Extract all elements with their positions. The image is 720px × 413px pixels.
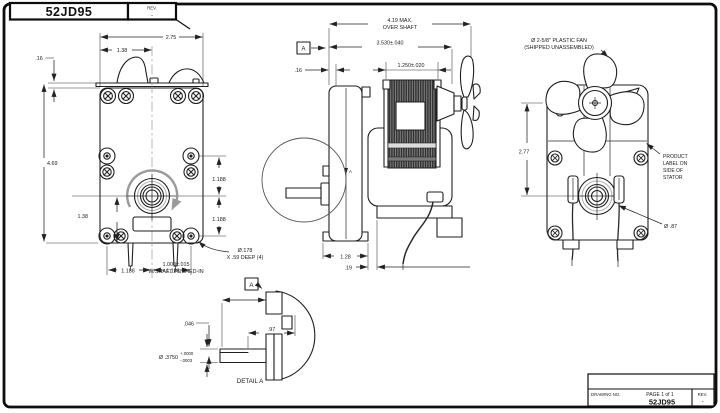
- boss-step: [282, 316, 292, 329]
- foot-width-dim: 1.28: [340, 255, 351, 261]
- bracket-base: [377, 206, 452, 218]
- stator-window: [396, 102, 425, 130]
- boss-section: [266, 292, 282, 314]
- overall-dim: OVER SHAFT: [383, 25, 418, 31]
- datum-flag-label: A: [249, 282, 254, 289]
- front-plate-gap-dim: .16: [35, 56, 43, 62]
- product-label-note: SIDE OF: [663, 168, 683, 174]
- fan-note: (SHIPPED UNASSEMBLED): [524, 45, 594, 51]
- shaft-length-dim: W/SHAFT PUSHED-IN: [148, 269, 203, 275]
- drawing-number-bottom: 52JD95: [649, 398, 675, 407]
- hole-spacing-dim: 1.188: [121, 269, 135, 275]
- hole-note: Ø.178: [238, 248, 253, 254]
- shaft-boss: [321, 183, 329, 205]
- datum-face-label: A: [349, 169, 352, 174]
- foot-offset-dim: .19: [345, 266, 353, 272]
- shaft-dia-tol-minus: -.0003: [180, 358, 193, 363]
- rev-value-bottom: -: [701, 399, 703, 406]
- shaft-section: [220, 349, 266, 363]
- product-label-note: LABEL ON: [663, 161, 688, 167]
- hub-section: [274, 334, 282, 380]
- front-shaft-base-dim: 1.38: [78, 214, 89, 220]
- flat-dim: .046: [184, 322, 195, 328]
- hole-note: X .59 DEEP (4): [227, 255, 264, 261]
- output-shaft-side: [286, 188, 321, 198]
- rev-label-top: REV.: [147, 6, 157, 11]
- front-half-width-dim: 1.38: [117, 48, 128, 54]
- title-block-chamfer: [176, 20, 190, 30]
- bracket-foot: [437, 218, 462, 237]
- product-label-note: PRODUCT: [663, 154, 688, 160]
- boss-dia-dim: Ø .87: [664, 224, 677, 230]
- front-height-dim: 4.69: [47, 161, 58, 167]
- shaft-dia-tol-plus: +.0000: [180, 351, 194, 356]
- fan-note: Ø 2-5/8" PLASTIC FAN: [531, 38, 587, 44]
- front-view: 2.75 1.38 .16 4.69 1.38 1.188 1.188 1.18…: [35, 33, 263, 279]
- face-gap-dim: .16: [295, 68, 303, 74]
- gearbox-side-outline: [329, 86, 362, 241]
- motor-detail-nub: [150, 78, 158, 83]
- rev-label-bottom: REV.: [698, 392, 708, 397]
- rear-view: Ø 2-5/8" PLASTIC FAN (SHIPPED UNASSEMBLE…: [519, 38, 688, 267]
- front-width-dim: 2.75: [166, 35, 177, 41]
- title-block-top: 52JD95 REV. -: [10, 3, 190, 29]
- overall-dim: 4.19 MAX.: [387, 18, 412, 24]
- stator-dim: 1.250±.020: [398, 63, 425, 69]
- side-view: A: [262, 18, 480, 272]
- detail-a-view: A 1.000±.015 W/SHAFT PUSHED-IN .046 .97 …: [148, 262, 314, 385]
- hub-section: [266, 334, 274, 380]
- shaft-center-dim: 2.77: [519, 150, 530, 156]
- hub-dim: .97: [268, 327, 276, 333]
- drawing-sheet: 2.75 1.38 .16 4.69 1.38 1.188 1.188 1.18…: [0, 0, 720, 413]
- stator-stack: [383, 80, 441, 168]
- drawing-no-label: DRAWING NO.: [591, 392, 620, 397]
- detail-caption: DETAIL A: [237, 378, 264, 385]
- fan-blade-silhouette: [117, 57, 148, 83]
- hole-spacing-dim: 1.188: [212, 217, 226, 223]
- drawing-number-top: 52JD95: [46, 5, 93, 19]
- top-tab: [362, 87, 370, 97]
- frame-foot: [617, 240, 633, 249]
- datum-flag-label: A: [301, 46, 306, 53]
- hole-spacing-dim: 1.188: [212, 177, 226, 183]
- motor-detail-nub: [193, 79, 199, 83]
- engineering-drawing: 2.75 1.38 .16 4.69 1.38 1.188 1.188 1.18…: [0, 0, 720, 413]
- title-block-bottom: DRAWING NO. PAGE 1 of 1 52JD95 REV. -: [588, 374, 714, 407]
- shaft-length-dim: 1.000±.015: [163, 262, 190, 268]
- rev-value-top: -: [151, 13, 153, 20]
- shaft-dia-dim: Ø .3750: [159, 355, 178, 361]
- frame-foot: [563, 240, 579, 249]
- datum-leader: [258, 285, 262, 289]
- length-dim: 3.530±.040: [377, 41, 404, 47]
- face-rib: [323, 166, 329, 176]
- product-label-note: STATOR: [663, 175, 683, 181]
